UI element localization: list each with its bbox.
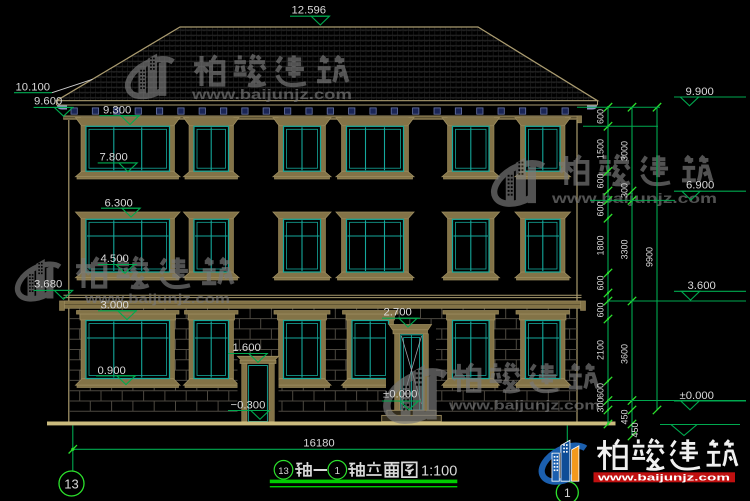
svg-text:600: 600 [596,383,606,398]
svg-text:600: 600 [596,173,606,188]
svg-text:www.baijunjz.com: www.baijunjz.com [448,399,600,413]
svg-text:3300: 3300 [620,239,630,259]
svg-text:300: 300 [620,183,630,198]
svg-text:0.900: 0.900 [98,365,126,377]
svg-text:13: 13 [278,466,289,477]
svg-text:1.600: 1.600 [233,342,261,354]
svg-text:www.baijunjz.com: www.baijunjz.com [596,473,730,484]
svg-text:600: 600 [596,275,606,290]
svg-text:3000: 3000 [620,141,630,161]
svg-text:3600: 3600 [620,344,630,364]
svg-text:6.300: 6.300 [105,197,133,209]
svg-text:1:100: 1:100 [421,464,457,480]
svg-text:6.900: 6.900 [686,180,714,192]
svg-text:13: 13 [64,477,78,492]
svg-text:2.700: 2.700 [384,306,412,318]
svg-text:9.900: 9.900 [686,86,714,98]
svg-text:±0.000: ±0.000 [383,389,417,401]
svg-text:7.800: 7.800 [100,152,128,164]
svg-text:300: 300 [596,397,606,412]
svg-text:3.680: 3.680 [34,279,62,291]
svg-text:9900: 9900 [645,247,655,267]
svg-text:9.300: 9.300 [103,104,131,116]
svg-text:600: 600 [596,201,606,216]
svg-text:600: 600 [596,302,606,317]
svg-text:10.100: 10.100 [16,82,51,94]
svg-text:−0.300: −0.300 [231,399,266,411]
svg-text:www.baijunjz.com: www.baijunjz.com [191,87,352,102]
svg-text:3.000: 3.000 [101,300,129,312]
svg-text:2100: 2100 [596,340,606,360]
svg-text:450: 450 [630,422,640,437]
svg-text:600: 600 [596,109,606,124]
svg-text:12.596: 12.596 [292,5,327,17]
svg-text:450: 450 [620,409,630,424]
svg-text:1: 1 [564,486,571,500]
svg-text:1500: 1500 [596,139,606,159]
svg-text:16180: 16180 [303,438,334,450]
svg-text:1: 1 [335,466,341,477]
svg-text:4.500: 4.500 [101,253,129,265]
svg-text:1800: 1800 [596,235,606,255]
svg-text:3.600: 3.600 [688,280,716,292]
svg-text:9.600: 9.600 [34,96,62,108]
